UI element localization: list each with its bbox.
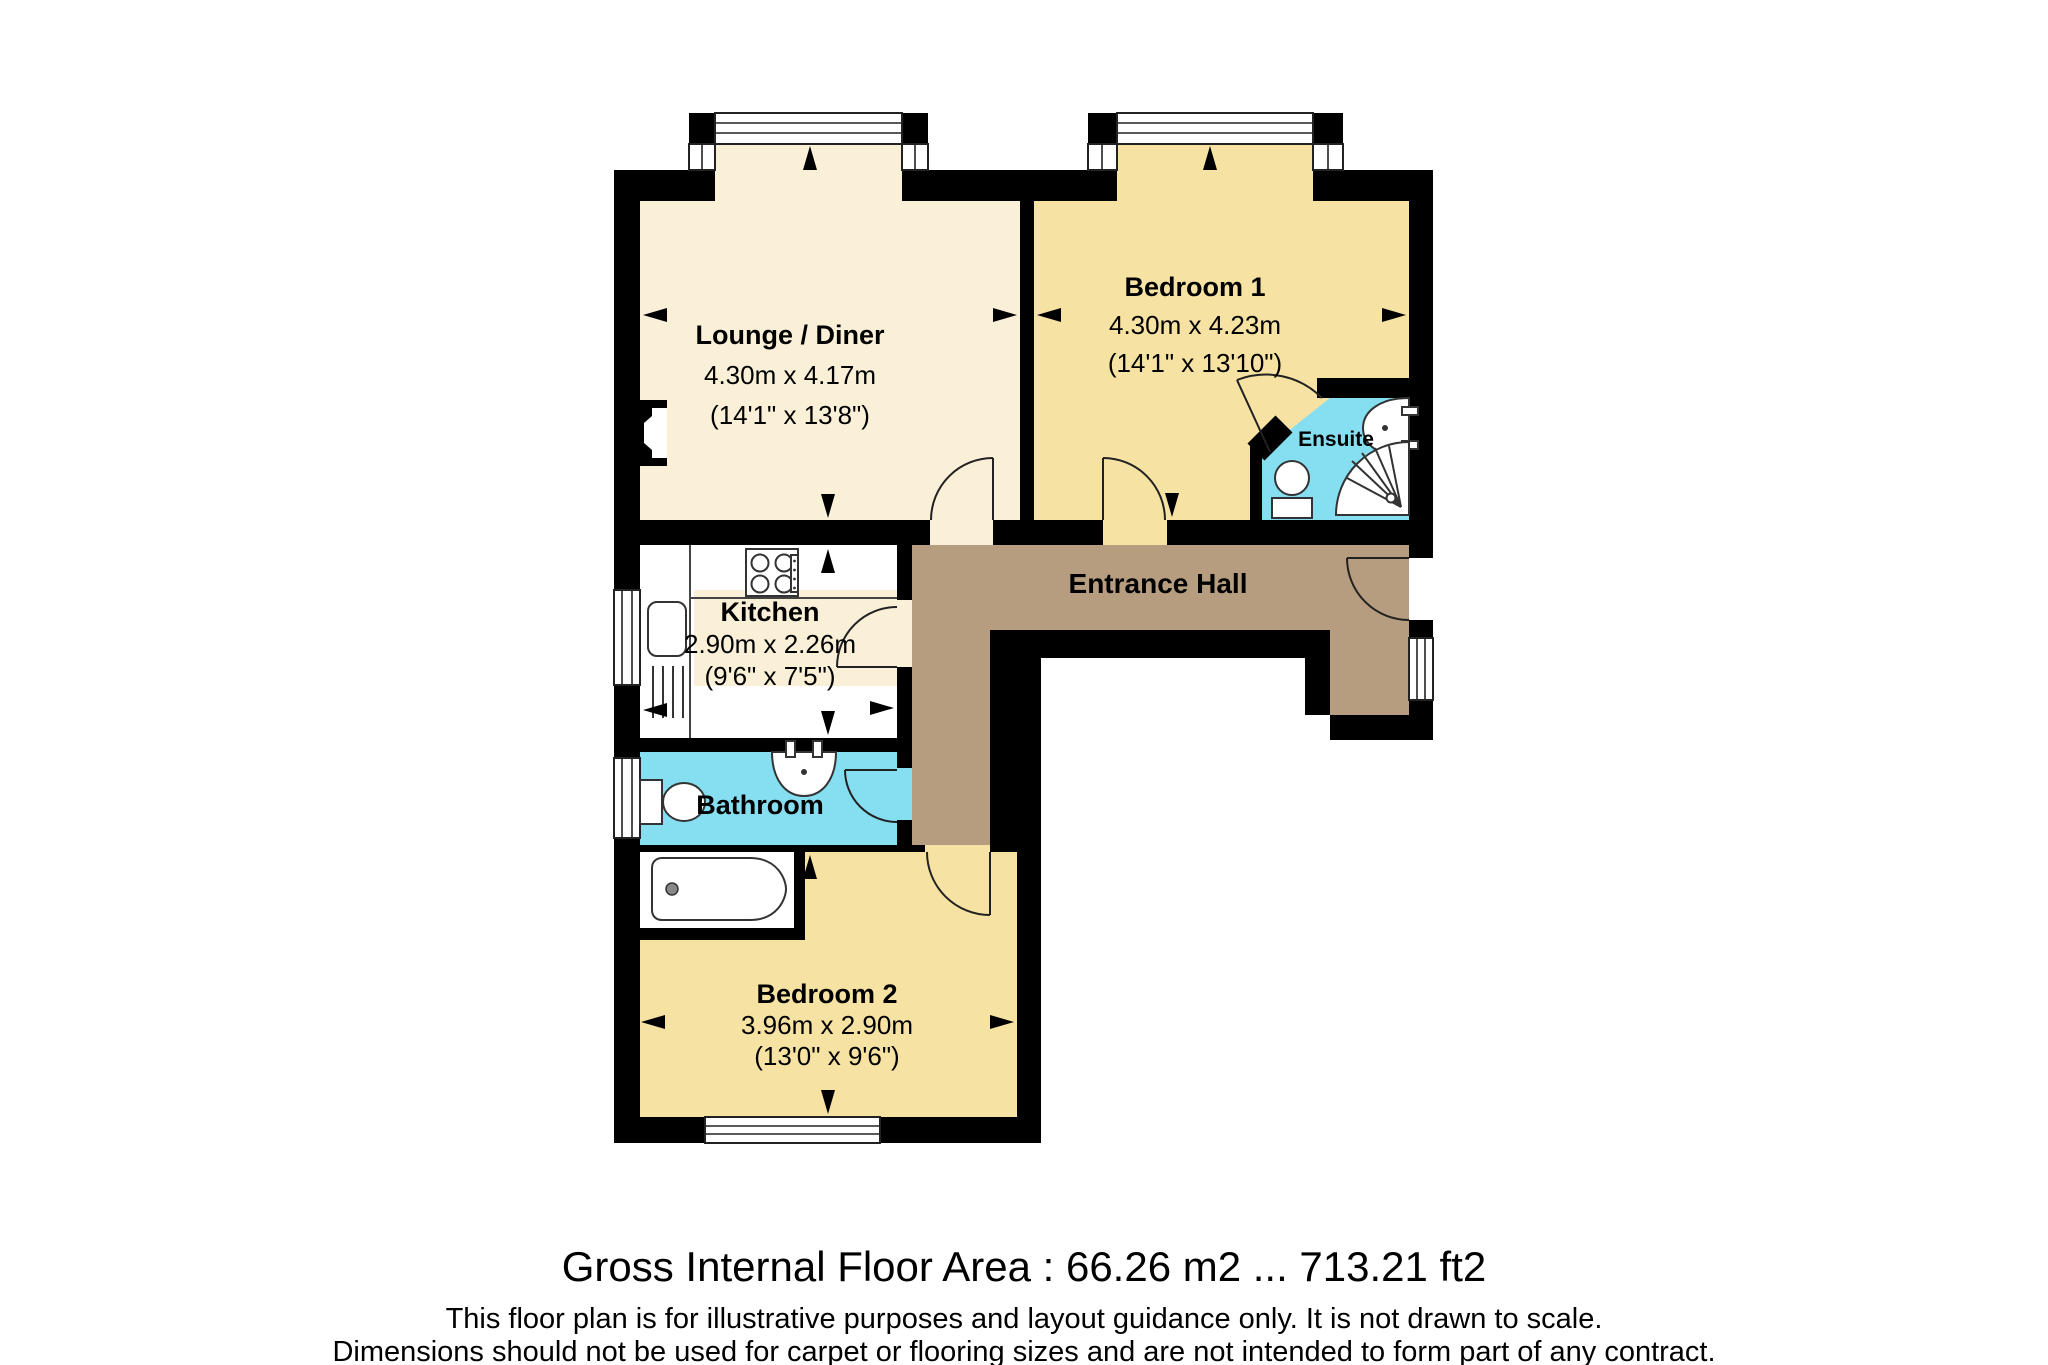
bathtub-icon <box>652 858 786 920</box>
bedroom1-label: Bedroom 1 <box>1124 272 1265 302</box>
chimney-recess-slot <box>652 408 667 458</box>
window <box>614 758 640 838</box>
wall <box>897 667 912 768</box>
bedroom2-label: Bedroom 2 <box>756 979 897 1009</box>
threshold-entrance <box>1409 558 1433 620</box>
window <box>1409 638 1433 700</box>
wall <box>640 845 925 852</box>
lounge-bay-floor <box>715 142 902 202</box>
entrance-hall-label: Entrance Hall <box>1069 568 1248 599</box>
wall <box>1017 852 1041 1143</box>
bedroom2-dim-imperial: (13'0" x 9'6") <box>754 1041 899 1071</box>
ensuite-label: Ensuite <box>1298 428 1374 451</box>
bedroom1-dim-imperial: (14'1" x 13'10") <box>1108 348 1282 378</box>
window <box>705 1117 880 1143</box>
bedroom1-dim-metric: 4.30m x 4.23m <box>1109 310 1281 340</box>
floorplan-drawing: Lounge / Diner 4.30m x 4.17m (14'1" x 13… <box>0 0 2048 1365</box>
wall <box>902 170 1117 201</box>
disclaimer-line-1: This floor plan is for illustrative purp… <box>446 1303 1603 1335</box>
bathroom-label: Bathroom <box>696 790 824 820</box>
footer: Gross Internal Floor Area : 66.26 m2 ...… <box>332 1243 1715 1365</box>
disclaimer-line-2: Dimensions should not be used for carpet… <box>332 1336 1715 1365</box>
wall <box>1167 520 1409 545</box>
threshold-bathroom <box>897 768 912 820</box>
bay-post <box>1088 113 1117 144</box>
wall <box>993 520 1103 545</box>
bay-post <box>902 113 928 144</box>
kitchen-dim-imperial: (9'6" x 7'5") <box>705 661 836 691</box>
threshold-bedroom1 <box>1103 520 1167 545</box>
wall <box>897 820 912 845</box>
wall <box>897 545 912 600</box>
lounge-label: Lounge / Diner <box>696 320 885 350</box>
wall <box>614 738 897 752</box>
wall <box>1305 658 1330 715</box>
bedroom2-dim-metric: 3.96m x 2.90m <box>741 1010 913 1040</box>
wall <box>1317 378 1409 398</box>
bay-post <box>1313 113 1343 144</box>
wall <box>990 630 1041 852</box>
floorplan-page: Lounge / Diner 4.30m x 4.17m (14'1" x 13… <box>0 0 2048 1365</box>
kitchen-label: Kitchen <box>720 597 819 627</box>
threshold-kitchen <box>897 600 912 667</box>
wall <box>614 520 930 545</box>
bathroom-toilet-icon <box>640 780 705 824</box>
lounge-dim-metric: 4.30m x 4.17m <box>704 360 876 390</box>
lounge-dim-imperial: (14'1" x 13'8") <box>710 400 870 430</box>
bay-post <box>689 113 715 144</box>
wall <box>1020 201 1034 545</box>
kitchen-dim-metric: 2.90m x 2.26m <box>684 629 856 659</box>
floor-area-title: Gross Internal Floor Area : 66.26 m2 ...… <box>562 1243 1487 1290</box>
wall <box>614 928 805 940</box>
threshold-lounge <box>930 520 993 545</box>
hob-icon <box>746 549 798 596</box>
wall <box>794 852 805 940</box>
threshold-bedroom2 <box>925 845 990 852</box>
window <box>715 113 902 144</box>
bedroom1-bay-floor <box>1117 142 1313 202</box>
wall <box>1330 715 1433 740</box>
window <box>1117 113 1313 144</box>
window <box>614 590 640 685</box>
